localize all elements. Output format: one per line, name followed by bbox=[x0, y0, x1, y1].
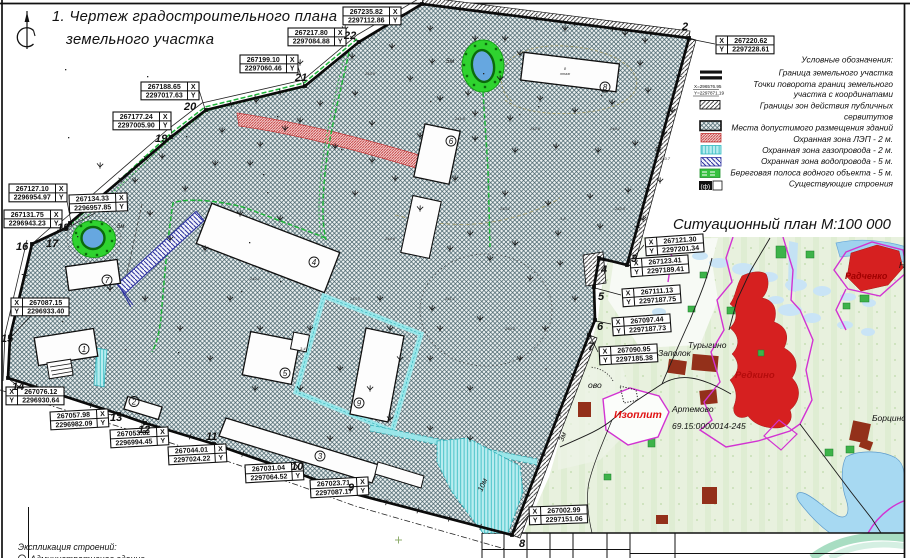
svg-text:X: X bbox=[59, 186, 64, 193]
svg-text:этаж: этаж bbox=[560, 71, 570, 76]
svg-text:Экспликация строений:: Экспликация строений: bbox=[18, 542, 117, 552]
svg-text:Y: Y bbox=[163, 123, 168, 130]
svg-text:Радченко: Радченко bbox=[845, 271, 888, 281]
svg-text:участка с координатами: участка с координатами bbox=[793, 89, 894, 99]
svg-text:Y: Y bbox=[533, 517, 538, 524]
svg-text:10: 10 bbox=[291, 461, 304, 473]
svg-text:1. Чертеж градостроительного: 1. Чертеж градостроительного плана bbox=[52, 9, 337, 25]
svg-text:Береговая полоса водного объек: Береговая полоса водного объекта - 5 м. bbox=[730, 167, 893, 177]
svg-text:12: 12 bbox=[138, 424, 150, 436]
svg-text:267220.62: 267220.62 bbox=[734, 38, 767, 45]
svg-text:6: 6 bbox=[597, 321, 604, 333]
svg-text:2297151.06: 2297151.06 bbox=[546, 516, 583, 524]
svg-text:2296954.97: 2296954.97 bbox=[14, 195, 51, 202]
svg-text:14: 14 bbox=[12, 381, 24, 393]
svg-text:Y: Y bbox=[14, 309, 19, 316]
svg-text:244.1: 244.1 bbox=[609, 126, 620, 131]
svg-text:267217.80: 267217.80 bbox=[295, 30, 328, 37]
svg-text:2297005.90: 2297005.90 bbox=[118, 123, 155, 130]
svg-text:242.1: 242.1 bbox=[249, 276, 260, 281]
svg-text:241.6: 241.6 bbox=[454, 116, 466, 121]
svg-text:Борцино: Борцино bbox=[872, 413, 906, 423]
svg-text:Охранная зона ЛЭП - 2 м.: Охранная зона ЛЭП - 2 м. bbox=[793, 134, 893, 144]
svg-text:241.1: 241.1 bbox=[444, 296, 455, 301]
svg-text:X: X bbox=[626, 290, 631, 297]
svg-text:Y: Y bbox=[295, 473, 300, 480]
svg-text:X: X bbox=[191, 84, 196, 91]
svg-text:Y: Y bbox=[100, 420, 105, 427]
svg-text:267076.12: 267076.12 bbox=[24, 389, 57, 396]
svg-text:3: 3 bbox=[631, 253, 637, 265]
svg-text:Y=2297871.19: Y=2297871.19 bbox=[694, 91, 724, 96]
svg-text:X: X bbox=[163, 114, 168, 121]
svg-text:267127.10: 267127.10 bbox=[16, 186, 49, 193]
svg-text:1.8: 1.8 bbox=[560, 216, 566, 221]
svg-text:Артемово: Артемово bbox=[671, 404, 714, 414]
svg-text:Y: Y bbox=[393, 18, 398, 25]
svg-text:Y: Y bbox=[338, 39, 343, 46]
svg-text:7: 7 bbox=[588, 341, 595, 353]
svg-text:240.7: 240.7 bbox=[659, 156, 671, 161]
svg-text:16: 16 bbox=[16, 241, 29, 253]
svg-text:7: 7 bbox=[105, 276, 110, 285]
svg-text:X: X bbox=[14, 300, 19, 307]
svg-text:267002.99: 267002.99 bbox=[547, 507, 580, 515]
svg-text:земельного участка: земельного участка bbox=[65, 32, 214, 48]
svg-text:Y: Y bbox=[9, 398, 14, 405]
svg-text:267199.10: 267199.10 bbox=[247, 57, 280, 64]
svg-text:2296930.64: 2296930.64 bbox=[22, 398, 59, 405]
svg-text:X: X bbox=[532, 509, 537, 516]
svg-text:Охранная зона газопровода - 2: Охранная зона газопровода - 2 м. bbox=[762, 145, 893, 155]
svg-text:ово: ово bbox=[588, 380, 602, 390]
svg-text:X: X bbox=[616, 319, 621, 326]
svg-text:Условные обозначения:: Условные обозначения: bbox=[800, 55, 893, 65]
svg-text:267235.82: 267235.82 bbox=[350, 9, 383, 16]
svg-text:X: X bbox=[290, 57, 295, 64]
svg-text:267087.15: 267087.15 bbox=[29, 300, 62, 307]
svg-text:2: 2 bbox=[681, 21, 688, 33]
svg-text:X: X bbox=[160, 429, 165, 436]
svg-text:3: 3 bbox=[318, 452, 323, 461]
svg-text:Y: Y bbox=[603, 357, 608, 364]
svg-text:Охранная зона водопровода - 5: Охранная зона водопровода - 5 м. bbox=[761, 156, 893, 166]
svg-text:Ситуационный план М:100 000: Ситуационный план М:100 000 bbox=[673, 217, 892, 233]
svg-text:244.6: 244.6 bbox=[384, 236, 396, 241]
svg-text:11: 11 bbox=[206, 431, 217, 443]
svg-text:Y: Y bbox=[626, 299, 631, 306]
svg-text:Места допустимого размещения з: Места допустимого размещения зданий bbox=[731, 123, 893, 133]
svg-text:15: 15 bbox=[1, 333, 14, 345]
svg-text:в: в bbox=[545, 366, 547, 371]
svg-text:2: 2 bbox=[131, 397, 137, 406]
svg-text:240.2: 240.2 bbox=[504, 326, 516, 331]
svg-text:5: 5 bbox=[598, 291, 605, 303]
svg-text:Y: Y bbox=[160, 438, 165, 445]
svg-text:9: 9 bbox=[357, 399, 362, 408]
svg-text:17: 17 bbox=[46, 238, 59, 250]
svg-text:242.5: 242.5 bbox=[614, 206, 626, 211]
svg-text:2296957.85: 2296957.85 bbox=[74, 204, 111, 212]
svg-text:2297060.46: 2297060.46 bbox=[245, 66, 282, 73]
svg-text:5м: 5м bbox=[117, 224, 124, 230]
svg-text:Административное здание: Административное здание bbox=[29, 554, 145, 558]
svg-text:Y: Y bbox=[616, 328, 621, 335]
svg-text:Существующие строения: Существующие строения bbox=[789, 179, 894, 189]
svg-text:242.8: 242.8 bbox=[529, 126, 541, 131]
svg-text:Y: Y bbox=[634, 269, 639, 276]
svg-text:2297084.88: 2297084.88 bbox=[293, 39, 330, 46]
svg-text:243.0: 243.0 bbox=[349, 296, 361, 301]
svg-text:6: 6 bbox=[449, 137, 454, 146]
svg-text:Y: Y bbox=[360, 488, 365, 495]
svg-text:20: 20 bbox=[183, 101, 197, 113]
svg-text:22: 22 bbox=[343, 30, 356, 42]
svg-text:Изоплит: Изоплит bbox=[614, 409, 662, 421]
svg-text:267134.33: 267134.33 bbox=[76, 195, 109, 203]
svg-text:1: 1 bbox=[82, 345, 86, 354]
svg-text:сервитутов: сервитутов bbox=[844, 112, 894, 122]
svg-text:Y: Y bbox=[119, 204, 124, 211]
svg-text:19: 19 bbox=[155, 133, 168, 145]
svg-text:3.4: 3.4 bbox=[300, 346, 306, 351]
svg-text:Y: Y bbox=[649, 248, 654, 255]
svg-text:4: 4 bbox=[600, 264, 607, 276]
svg-text:X: X bbox=[393, 9, 398, 16]
svg-text:9: 9 bbox=[348, 482, 355, 494]
svg-text:5м: 5м bbox=[446, 58, 455, 65]
svg-text:Y: Y bbox=[719, 47, 724, 54]
svg-text:X: X bbox=[119, 195, 124, 202]
svg-text:Редкино: Редкино bbox=[735, 370, 775, 381]
svg-text:Y: Y bbox=[191, 93, 196, 100]
svg-text:(ф): (ф) bbox=[701, 184, 711, 191]
svg-text:18: 18 bbox=[57, 222, 70, 234]
svg-text:243.2: 243.2 bbox=[499, 206, 511, 211]
svg-text:8: 8 bbox=[519, 538, 526, 550]
svg-text:2297112.86: 2297112.86 bbox=[348, 18, 385, 25]
svg-text:Границы зон действия публичных: Границы зон действия публичных bbox=[760, 100, 894, 110]
svg-text:X: X bbox=[54, 212, 59, 219]
svg-text:243.9: 243.9 bbox=[364, 71, 376, 76]
svg-text:Y: Y bbox=[218, 455, 223, 462]
svg-text:X: X bbox=[360, 479, 365, 486]
svg-text:X: X bbox=[649, 239, 654, 246]
svg-text:13: 13 bbox=[110, 412, 122, 424]
svg-text:4: 4 bbox=[312, 258, 317, 267]
svg-text:X: X bbox=[100, 411, 105, 418]
svg-text:267177.24: 267177.24 bbox=[120, 114, 153, 121]
svg-text:21: 21 bbox=[294, 72, 307, 84]
svg-text:267131.75: 267131.75 bbox=[11, 212, 44, 219]
svg-text:2296933.40: 2296933.40 bbox=[27, 309, 64, 316]
svg-text:2297228.61: 2297228.61 bbox=[732, 47, 769, 54]
svg-text:X: X bbox=[218, 446, 223, 453]
svg-text:Y: Y bbox=[59, 195, 64, 202]
svg-text:X: X bbox=[719, 38, 724, 45]
svg-text:X=296576.95: X=296576.95 bbox=[694, 84, 722, 89]
svg-text:8: 8 bbox=[603, 83, 608, 92]
svg-text:Точки поворота границ земельно: Точки поворота границ земельного bbox=[753, 79, 893, 89]
svg-text:Заполок: Заполок bbox=[658, 348, 692, 358]
svg-text:X: X bbox=[338, 30, 343, 37]
svg-text:X: X bbox=[603, 348, 608, 355]
svg-text:2296943.23: 2296943.23 bbox=[9, 221, 46, 228]
svg-text:5: 5 bbox=[283, 369, 288, 378]
svg-text:2297017.63: 2297017.63 bbox=[146, 93, 183, 100]
svg-text:69.15:0000014-245: 69.15:0000014-245 bbox=[672, 421, 746, 431]
svg-text:Турыгино: Турыгино bbox=[688, 340, 727, 350]
svg-text:267188.65: 267188.65 bbox=[148, 84, 181, 91]
svg-text:Граница земельного участка: Граница земельного участка bbox=[779, 68, 894, 78]
